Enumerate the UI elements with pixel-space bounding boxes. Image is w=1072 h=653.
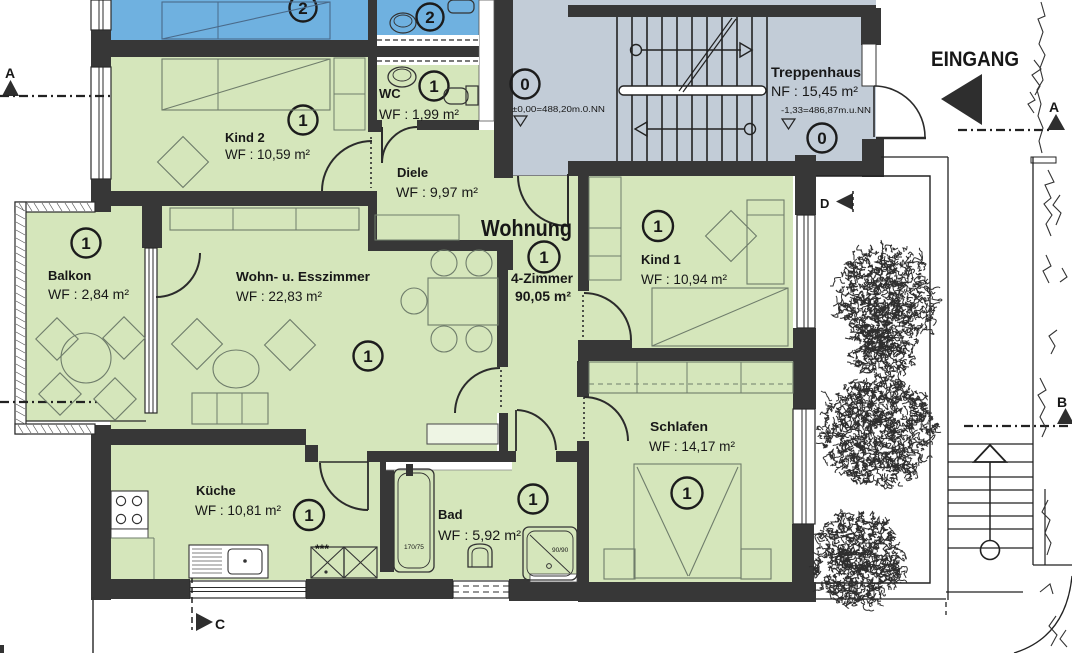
svg-text:Wohn- u. Esszimmer: Wohn- u. Esszimmer — [236, 269, 370, 284]
svg-text:Küche: Küche — [196, 483, 236, 498]
svg-text:EINGANG: EINGANG — [931, 48, 1019, 71]
svg-text:1: 1 — [682, 484, 691, 503]
svg-text:WF : 5,92 m²: WF : 5,92 m² — [438, 528, 522, 543]
svg-text:WF : 22,83 m²: WF : 22,83 m² — [236, 289, 323, 304]
svg-text:WF : 9,97 m²: WF : 9,97 m² — [396, 185, 479, 200]
svg-text:A: A — [1049, 99, 1059, 115]
svg-text:Balkon: Balkon — [48, 268, 91, 283]
svg-text:WC: WC — [379, 86, 401, 101]
svg-text:WF : 10,94 m²: WF : 10,94 m² — [641, 272, 728, 287]
svg-text:Bad: Bad — [438, 507, 463, 522]
svg-text:D: D — [820, 196, 829, 211]
svg-text:4-Zimmer: 4-Zimmer — [511, 270, 574, 286]
svg-text:WF : 10,59 m²: WF : 10,59 m² — [225, 147, 311, 162]
svg-text:1: 1 — [528, 490, 537, 509]
svg-text:1: 1 — [539, 248, 548, 267]
svg-text:WF : 10,81 m²: WF : 10,81 m² — [195, 503, 282, 518]
svg-text:90,05 m²: 90,05 m² — [515, 288, 571, 304]
svg-text:A: A — [5, 65, 15, 81]
svg-text:1: 1 — [429, 77, 438, 96]
svg-text:WF : 2,84 m²: WF : 2,84 m² — [48, 287, 130, 302]
svg-text:NF : 15,45 m²: NF : 15,45 m² — [771, 84, 859, 99]
svg-text:Kind 2: Kind 2 — [225, 130, 265, 145]
svg-text:WF : 1,99 m²: WF : 1,99 m² — [379, 107, 460, 122]
svg-text:170/75: 170/75 — [404, 544, 424, 551]
svg-text:Treppenhaus: Treppenhaus — [771, 65, 861, 80]
svg-text:0: 0 — [817, 129, 826, 148]
svg-text:0: 0 — [520, 75, 529, 94]
svg-text:-1,33=486,87m.u.NN: -1,33=486,87m.u.NN — [781, 106, 871, 115]
svg-text:2: 2 — [425, 8, 434, 27]
svg-text:1: 1 — [298, 111, 307, 130]
svg-text:***: *** — [315, 542, 329, 556]
svg-text:B: B — [1057, 394, 1067, 410]
svg-text:C: C — [215, 616, 225, 632]
svg-text:Wohnung: Wohnung — [481, 215, 572, 241]
svg-text:WF : 14,17 m²: WF : 14,17 m² — [649, 439, 736, 454]
svg-text:±0,00=488,20m.0.NN: ±0,00=488,20m.0.NN — [512, 105, 605, 114]
svg-text:1: 1 — [653, 217, 662, 236]
svg-text:Diele: Diele — [397, 165, 428, 180]
svg-text:1: 1 — [363, 347, 372, 366]
svg-text:Kind 1: Kind 1 — [641, 252, 681, 267]
svg-text:Schlafen: Schlafen — [650, 419, 708, 434]
svg-text:1: 1 — [304, 506, 313, 525]
svg-text:1: 1 — [81, 234, 90, 253]
svg-text:90/90: 90/90 — [552, 547, 569, 554]
